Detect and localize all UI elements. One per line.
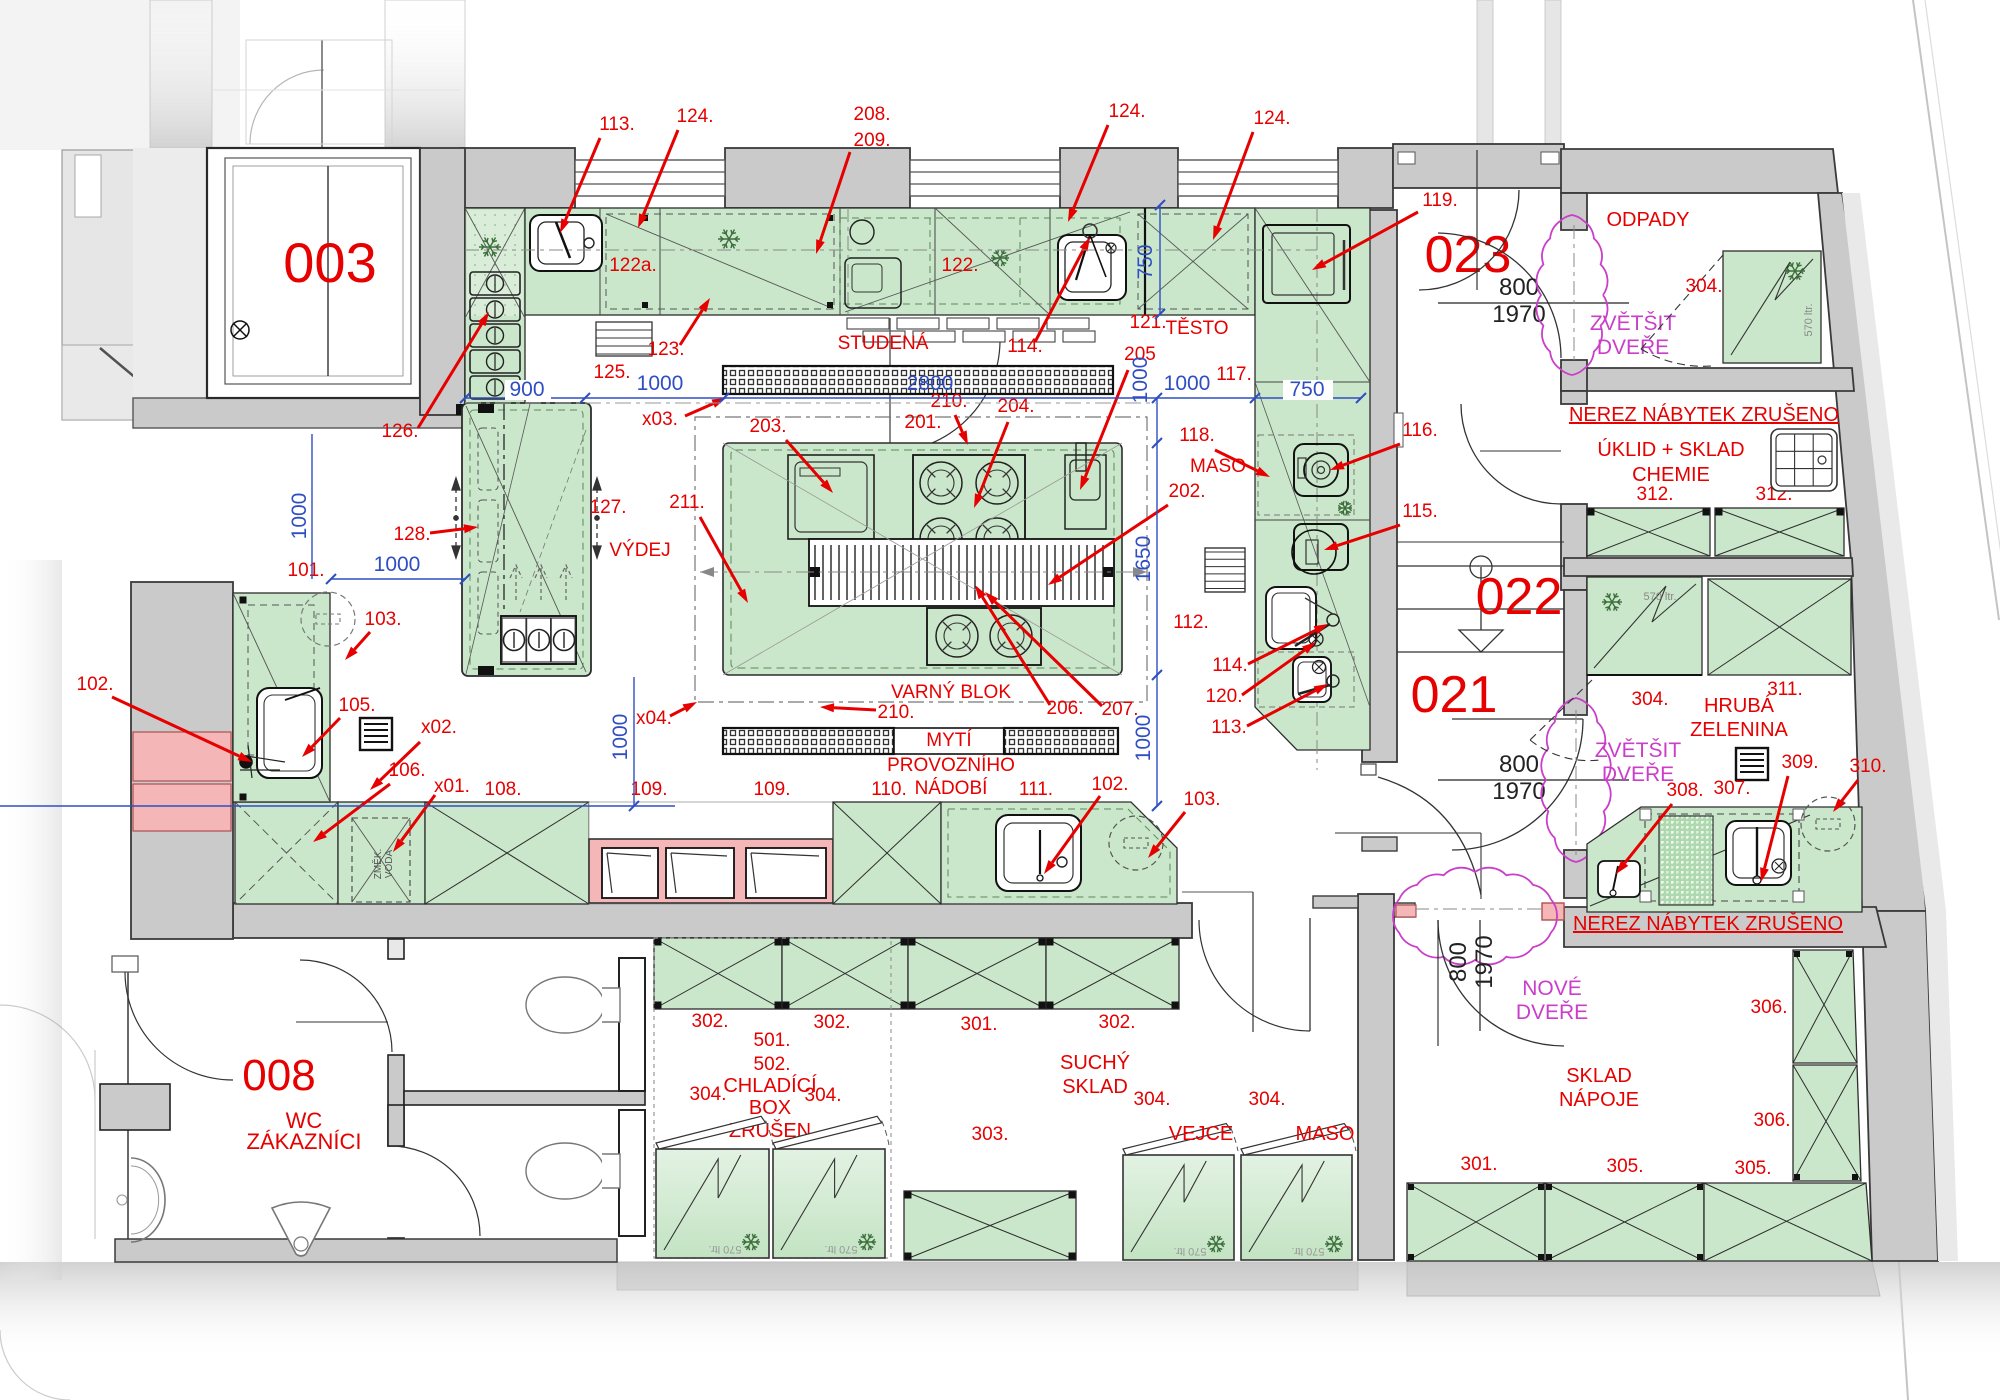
svg-text:105.: 105. <box>339 695 376 716</box>
svg-text:103.: 103. <box>365 609 402 630</box>
svg-text:115.: 115. <box>1402 501 1438 522</box>
svg-text:DVEŘE: DVEŘE <box>1516 1001 1588 1024</box>
svg-text:003: 003 <box>283 231 376 294</box>
svg-text:309.: 309. <box>1782 752 1819 773</box>
svg-text:117.: 117. <box>1216 364 1252 385</box>
svg-text:304.: 304. <box>1249 1089 1286 1110</box>
svg-text:x02.: x02. <box>421 717 457 738</box>
svg-text:306.: 306. <box>1751 997 1788 1018</box>
svg-text:ODPADY: ODPADY <box>1607 209 1690 231</box>
svg-text:114.: 114. <box>1212 655 1248 676</box>
svg-text:MASO: MASO <box>1190 456 1246 477</box>
svg-text:1000: 1000 <box>1129 357 1152 404</box>
svg-text:ZELENINA: ZELENINA <box>1690 719 1788 741</box>
svg-text:501.: 501. <box>754 1030 791 1051</box>
svg-text:209.: 209. <box>854 130 891 151</box>
svg-text:x04.: x04. <box>636 708 672 729</box>
svg-text:304.: 304. <box>1632 689 1669 710</box>
svg-text:301.: 301. <box>1461 1154 1498 1175</box>
svg-text:310.: 310. <box>1850 756 1887 777</box>
svg-text:108.: 108. <box>485 779 522 800</box>
svg-text:124.: 124. <box>677 106 714 127</box>
svg-text:900: 900 <box>509 378 544 401</box>
svg-text:125.: 125. <box>594 362 631 383</box>
svg-text:ZVĚTŠIT: ZVĚTŠIT <box>1595 739 1682 762</box>
svg-text:305.: 305. <box>1607 1156 1644 1177</box>
svg-text:1000: 1000 <box>609 714 632 761</box>
svg-text:208.: 208. <box>854 104 891 125</box>
svg-text:201.: 201. <box>905 412 942 433</box>
svg-text:750: 750 <box>1289 378 1324 401</box>
svg-text:570 ltr.: 570 ltr. <box>708 1243 741 1255</box>
svg-text:022: 022 <box>1476 568 1563 626</box>
svg-text:121.: 121. <box>1130 312 1167 333</box>
svg-text:119.: 119. <box>1422 190 1458 211</box>
svg-text:1000: 1000 <box>637 372 684 395</box>
svg-text:VÝDEJ: VÝDEJ <box>609 540 670 561</box>
svg-text:307.: 307. <box>1714 778 1751 799</box>
svg-text:126.: 126. <box>382 421 419 442</box>
svg-text:102.: 102. <box>1092 774 1129 795</box>
svg-text:302.: 302. <box>1099 1012 1136 1033</box>
svg-text:302.: 302. <box>814 1012 851 1033</box>
svg-text:800: 800 <box>1499 751 1539 778</box>
svg-text:MASO: MASO <box>1296 1123 1355 1145</box>
svg-text:ÚKLID + SKLAD: ÚKLID + SKLAD <box>1597 438 1744 461</box>
svg-text:DVEŘE: DVEŘE <box>1602 763 1674 786</box>
svg-text:112.: 112. <box>1173 612 1209 633</box>
svg-text:111.: 111. <box>1019 779 1053 800</box>
svg-text:118.: 118. <box>1179 425 1215 446</box>
svg-text:021: 021 <box>1411 666 1498 724</box>
svg-text:204.: 204. <box>998 396 1035 417</box>
svg-text:570 ltr.: 570 ltr. <box>1291 1245 1324 1257</box>
svg-text:103.: 103. <box>1184 789 1221 810</box>
svg-text:109.: 109. <box>754 779 791 800</box>
svg-text:STUDENÁ: STUDENÁ <box>838 333 929 354</box>
svg-text:116.: 116. <box>1402 420 1438 441</box>
svg-text:570 ltr.: 570 ltr. <box>1173 1245 1206 1257</box>
svg-text:TĚSTO: TĚSTO <box>1166 317 1229 339</box>
svg-text:NÁDOBÍ: NÁDOBÍ <box>915 778 989 799</box>
svg-text:1000: 1000 <box>1164 372 1211 395</box>
svg-text:008: 008 <box>242 1051 315 1100</box>
svg-text:303.: 303. <box>972 1124 1009 1145</box>
svg-text:NEREZ NÁBYTEK ZRUŠENO: NEREZ NÁBYTEK ZRUŠENO <box>1569 403 1839 426</box>
svg-text:x01.: x01. <box>434 776 470 797</box>
svg-text:SUCHÝ: SUCHÝ <box>1060 1051 1130 1074</box>
svg-text:211.: 211. <box>669 492 705 513</box>
svg-text:MYTÍ: MYTÍ <box>926 730 972 751</box>
svg-text:CHEMIE: CHEMIE <box>1632 464 1710 486</box>
svg-text:NEREZ NÁBYTEK ZRUŠENO: NEREZ NÁBYTEK ZRUŠENO <box>1573 912 1843 935</box>
svg-text:120.: 120. <box>1206 686 1243 707</box>
svg-text:128.: 128. <box>394 524 431 545</box>
svg-text:VODA: VODA <box>384 850 395 879</box>
svg-text:124.: 124. <box>1109 101 1146 122</box>
svg-text:122a.: 122a. <box>609 255 657 276</box>
svg-text:VEJCE: VEJCE <box>1169 1123 1233 1145</box>
svg-text:304.: 304. <box>690 1084 727 1105</box>
svg-text:127.: 127. <box>590 497 627 518</box>
svg-text:1000: 1000 <box>288 493 311 540</box>
svg-text:502.: 502. <box>754 1054 791 1075</box>
svg-text:113.: 113. <box>599 114 635 135</box>
svg-text:NOVÉ: NOVÉ <box>1522 977 1582 1000</box>
svg-text:312.: 312. <box>1637 484 1674 505</box>
svg-text:1970: 1970 <box>1492 778 1545 805</box>
svg-text:301.: 301. <box>961 1014 998 1035</box>
svg-text:DVEŘE: DVEŘE <box>1597 336 1669 359</box>
svg-text:VARNÝ BLOK: VARNÝ BLOK <box>891 682 1011 703</box>
svg-text:110.: 110. <box>871 779 907 800</box>
svg-text:1970: 1970 <box>1471 935 1498 988</box>
svg-text:800: 800 <box>1445 942 1472 982</box>
svg-text:302.: 302. <box>692 1011 729 1032</box>
svg-text:102.: 102. <box>77 674 114 695</box>
svg-text:CHLADÍCÍ: CHLADÍCÍ <box>723 1074 817 1097</box>
svg-text:1000: 1000 <box>1132 715 1155 762</box>
svg-text:306.: 306. <box>1754 1110 1791 1131</box>
svg-text:210.: 210. <box>878 702 915 723</box>
svg-text:HRUBÁ: HRUBÁ <box>1704 694 1775 717</box>
svg-text:305.: 305. <box>1735 1158 1772 1179</box>
svg-text:570 ltr.: 570 ltr. <box>1803 303 1815 336</box>
svg-text:109.: 109. <box>631 779 668 800</box>
svg-text:PROVOZNÍHO: PROVOZNÍHO <box>887 755 1015 776</box>
svg-text:SKLAD: SKLAD <box>1062 1076 1128 1098</box>
svg-text:SKLAD: SKLAD <box>1566 1065 1632 1087</box>
svg-text:570 ltr.: 570 ltr. <box>1643 591 1676 603</box>
svg-text:122.: 122. <box>942 255 979 276</box>
svg-text:ZÁKAZNÍCI: ZÁKAZNÍCI <box>247 1129 362 1154</box>
svg-text:1000: 1000 <box>374 553 421 576</box>
svg-text:304.: 304. <box>1134 1089 1171 1110</box>
svg-text:BOX: BOX <box>749 1097 791 1119</box>
svg-text:1650: 1650 <box>1132 536 1155 583</box>
svg-text:124.: 124. <box>1254 108 1291 129</box>
svg-text:202.: 202. <box>1169 481 1206 502</box>
svg-text:ZVĚTŠIT: ZVĚTŠIT <box>1590 312 1677 335</box>
svg-text:101.: 101. <box>288 560 325 581</box>
svg-text:203.: 203. <box>750 416 787 437</box>
svg-text:304.: 304. <box>1686 276 1723 297</box>
svg-text:800: 800 <box>1499 274 1539 301</box>
svg-text:570 ltr.: 570 ltr. <box>824 1243 857 1255</box>
svg-text:2800: 2800 <box>907 372 954 395</box>
svg-text:308.: 308. <box>1667 780 1704 801</box>
svg-text:123.: 123. <box>648 339 685 360</box>
svg-text:x03.: x03. <box>642 409 678 430</box>
svg-text:ZMĚK.: ZMĚK. <box>371 849 384 880</box>
svg-text:106.: 106. <box>389 760 426 781</box>
svg-text:NÁPOJE: NÁPOJE <box>1559 1088 1639 1111</box>
svg-text:304.: 304. <box>805 1085 842 1106</box>
svg-text:113.: 113. <box>1211 717 1247 738</box>
svg-text:206.: 206. <box>1047 698 1084 719</box>
